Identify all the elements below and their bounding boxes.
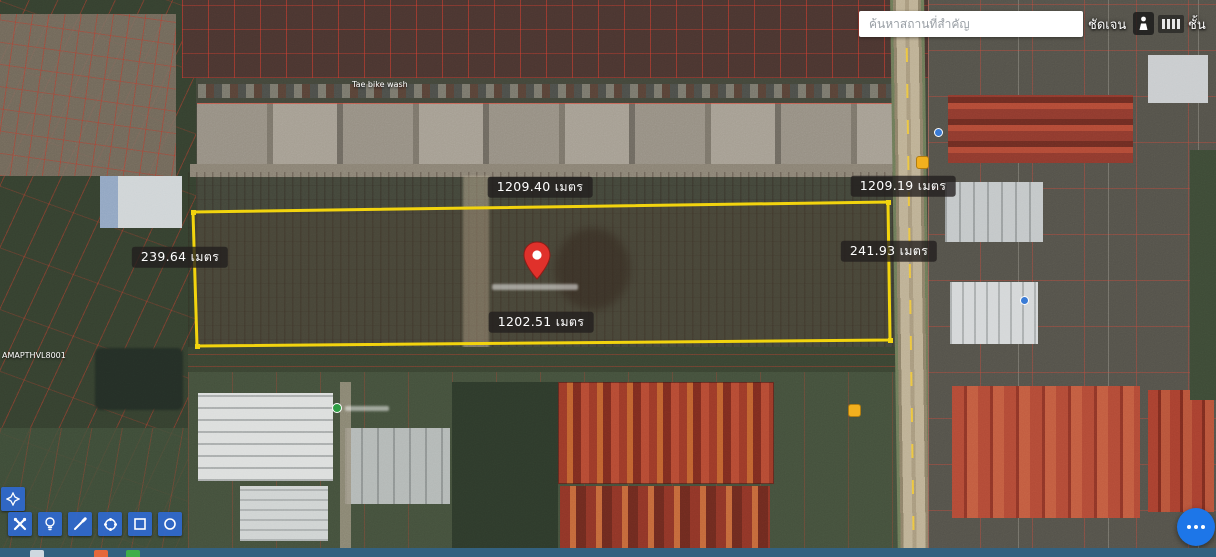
taskbar-icon[interactable] bbox=[94, 550, 108, 557]
draw-polygon-button[interactable] bbox=[98, 512, 122, 536]
draw-rectangle-button[interactable] bbox=[128, 512, 152, 536]
measurement-right: 241.93 เมตร bbox=[841, 241, 937, 262]
more-options-fab[interactable] bbox=[1177, 508, 1215, 546]
map-label-bike-wash: Tae bike wash bbox=[352, 80, 408, 89]
route-shield-icon[interactable] bbox=[848, 404, 861, 417]
draw-line-button[interactable] bbox=[68, 512, 92, 536]
store-pin-icon[interactable] bbox=[332, 403, 342, 413]
idea-marker-button[interactable] bbox=[38, 512, 62, 536]
polygon-icon bbox=[103, 517, 118, 532]
bulb-icon bbox=[44, 517, 56, 532]
taskbar-icon[interactable] bbox=[30, 550, 44, 557]
measurement-top: 1209.40 เมตร bbox=[488, 177, 593, 198]
search-input[interactable] bbox=[859, 11, 1083, 37]
pan-tool-button[interactable] bbox=[1, 487, 25, 511]
tools-button[interactable] bbox=[8, 512, 32, 536]
rectangle-icon bbox=[133, 517, 147, 531]
layer-button[interactable]: ชั้น bbox=[1188, 14, 1206, 35]
street-view-button[interactable] bbox=[1133, 12, 1154, 35]
measurement-bottom: 1202.51 เมตร bbox=[489, 312, 594, 333]
clear-button[interactable]: ชัดเจน bbox=[1088, 14, 1126, 35]
taskbar[interactable] bbox=[0, 548, 1216, 557]
bars-icon bbox=[1162, 19, 1165, 29]
measurement-left: 239.64 เมตร bbox=[132, 247, 228, 268]
poi-dot-icon[interactable] bbox=[934, 128, 943, 137]
map-canvas[interactable]: Tae bike wash AMAPTHVL8001 1209.40 เมตร … bbox=[0, 0, 1216, 557]
draw-circle-button[interactable] bbox=[158, 512, 182, 536]
pan-hand-icon bbox=[6, 492, 20, 506]
measurement-top-right: 1209.19 เมตร bbox=[851, 176, 956, 197]
store-label-blur bbox=[345, 406, 389, 411]
tools-icon bbox=[13, 517, 27, 531]
floors-indicator-button[interactable] bbox=[1158, 15, 1184, 33]
poi-dot-icon[interactable] bbox=[1020, 296, 1029, 305]
pencil-icon bbox=[73, 517, 87, 531]
taskbar-icon[interactable] bbox=[126, 550, 140, 557]
pin-caption-blur bbox=[492, 284, 578, 290]
route-shield-icon[interactable] bbox=[916, 156, 929, 169]
map-label-left-code: AMAPTHVL8001 bbox=[2, 351, 66, 360]
more-options-icon bbox=[1187, 525, 1191, 529]
circle-icon bbox=[163, 517, 177, 531]
street-view-person-icon bbox=[1137, 16, 1150, 31]
